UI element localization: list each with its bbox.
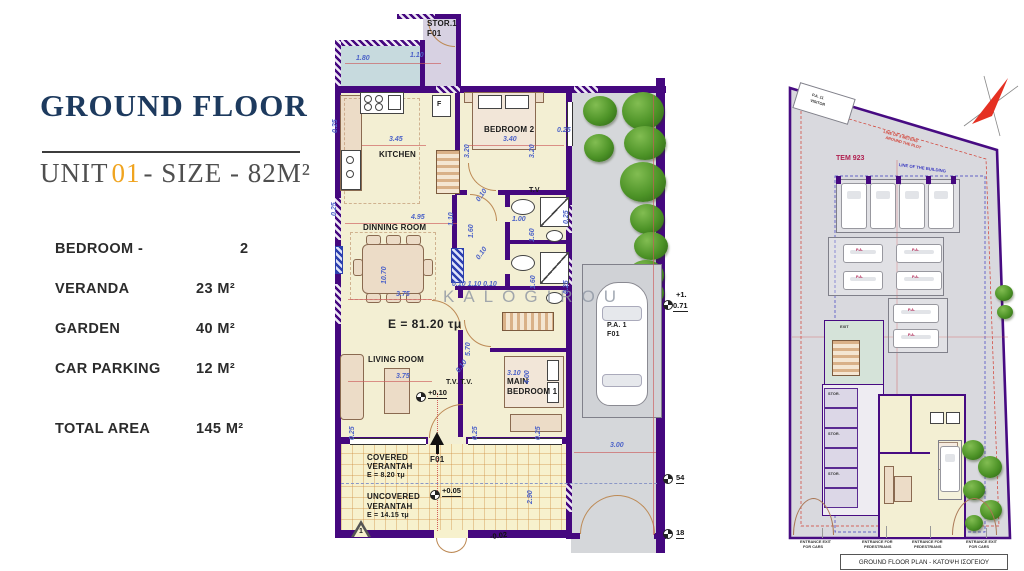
stairs: [832, 340, 860, 376]
uncovered-veranda-label: UNCOVERED: [367, 492, 420, 501]
dim: 0.25: [472, 426, 479, 440]
entrance-code-label: F01: [430, 455, 444, 464]
dim-line: [362, 145, 426, 146]
car: [896, 271, 942, 290]
stove-burner: [375, 103, 383, 111]
tree: [620, 162, 666, 202]
dim: 0.25: [563, 210, 570, 224]
storage-cell-label: STOR.: [828, 472, 840, 476]
covered-veranda-label2: VERANTAH: [367, 462, 412, 471]
dim: 1.80: [356, 55, 370, 62]
dim: 3.40: [503, 136, 517, 143]
dim: 0.25: [563, 280, 570, 294]
stall-label: P.A.: [856, 275, 863, 279]
pillow: [505, 95, 529, 109]
car: [940, 446, 960, 492]
dim: 0.10 1.10 0.10: [452, 281, 497, 288]
dim-line: [348, 381, 432, 382]
covered-veranda-area: E = 8.20 τμ: [367, 472, 405, 479]
leader-line: [986, 528, 987, 538]
level-value: 0.71: [673, 301, 688, 312]
entrance-arrow-stem: [436, 445, 439, 454]
tree: [962, 440, 984, 460]
car: [843, 244, 883, 263]
stairs: [502, 312, 554, 331]
tree: [622, 92, 664, 130]
dim-line: [574, 452, 656, 453]
fridge-label: F: [437, 101, 441, 108]
storage-cell: [824, 488, 858, 508]
entrance-label-cars: ENTRANCE EXIT: [966, 540, 997, 544]
tree: [995, 285, 1013, 301]
storage-code: F01: [427, 29, 441, 38]
entrance-label-cars: ENTRANCE EXIT: [800, 540, 831, 544]
nightstand: [535, 92, 544, 103]
pillow: [547, 360, 559, 381]
dim: 10.70: [381, 266, 388, 284]
pillow: [478, 95, 502, 109]
stove-burner: [364, 95, 372, 103]
unit-subtitle: UNIT01- SIZE - 82M²: [40, 158, 311, 189]
entrance-arrow-icon: [430, 432, 444, 445]
dim-line: [653, 95, 654, 535]
stall-label: P.A.: [908, 308, 915, 312]
room-label-main-bedroom2: BEDROOM 1: [507, 387, 557, 396]
dim: 1.10: [448, 212, 455, 226]
storage-cell: [824, 468, 858, 488]
wall: [436, 86, 460, 93]
column: [451, 248, 464, 283]
level-value: 18: [676, 528, 684, 539]
dim: 3.20: [464, 144, 471, 158]
wall: [335, 40, 425, 46]
wall: [505, 240, 572, 244]
wall: [490, 348, 572, 352]
dim: 3.75: [396, 373, 410, 380]
pier: [896, 176, 901, 184]
veranda-divider-dashed: [341, 483, 657, 484]
car: [843, 271, 883, 290]
sink: [511, 199, 535, 215]
bath-mini: [946, 412, 960, 424]
dim: 2.90: [527, 490, 534, 504]
spec-row-garden: GARDEN40 M²: [55, 321, 235, 337]
tree: [997, 305, 1013, 319]
dim: 0.25: [332, 119, 339, 133]
tree: [978, 456, 1002, 478]
window: [468, 438, 562, 445]
spec-label: BEDROOM -: [55, 241, 196, 257]
spec-row-parking: CAR PARKING12 M²: [55, 361, 235, 377]
storage-cell-label: STOR.: [828, 392, 840, 396]
column: [335, 246, 343, 274]
room-label-living: LIVING ROOM: [368, 355, 424, 364]
car: [893, 329, 939, 348]
door-opening: [505, 260, 510, 274]
level-marker-icon: [663, 300, 673, 310]
storage-floor: [341, 45, 421, 87]
level-value: +0.10: [428, 388, 447, 399]
unit-number: 01: [108, 158, 143, 188]
page: GROUND FLOOR UNIT01- SIZE - 82M² BEDROOM…: [0, 0, 1024, 571]
dim-line: [348, 299, 432, 300]
tree: [963, 480, 985, 500]
wall: [566, 484, 572, 512]
pier: [866, 176, 871, 184]
wall: [335, 284, 341, 324]
window: [567, 102, 573, 146]
dim: 0.25: [331, 202, 338, 216]
entrance-label-ped: ENTRANCE FOR: [862, 540, 893, 544]
parking-code: F01: [607, 331, 620, 338]
dim: 3.10: [507, 370, 521, 377]
covered-veranda-label: COVERED: [367, 453, 408, 462]
room-label-bedroom2: BEDROOM 2: [484, 125, 534, 134]
car-rear-window: [602, 374, 642, 387]
site-plan-title-box: GROUND FLOOR PLAN - ΚΑΤΟΨΗ ΙΣΟΓΕΙΟΥ: [840, 554, 1008, 570]
stall-label: P.A.: [908, 333, 915, 337]
leader-line: [822, 528, 823, 538]
spec-row-veranda: VERANDA23 M²: [55, 281, 235, 297]
car: [893, 304, 939, 323]
level-value: +0.05: [442, 486, 461, 497]
spec-value: 2: [240, 241, 248, 257]
uncovered-veranda-area: E = 14.15 τμ: [367, 512, 409, 519]
exit-label: EXIT: [840, 325, 849, 329]
dim: 3.75: [396, 291, 410, 298]
toilet: [546, 230, 563, 242]
dim: 3.00: [610, 442, 624, 449]
dim: 5.70: [465, 342, 472, 356]
tv-label: T.V: [529, 187, 540, 194]
plot-number: TEM 923: [836, 155, 864, 162]
dining-dashed-outline: [350, 232, 436, 300]
table-mini: [894, 476, 912, 502]
level-value: +1.: [676, 290, 687, 299]
tree: [624, 126, 666, 160]
entrance-label-cars2: FOR CARS: [969, 545, 989, 549]
wall: [880, 452, 930, 454]
door-arc: [451, 538, 467, 553]
leader-line: [930, 526, 931, 538]
dim: 3.20: [529, 144, 536, 158]
entrance-label-ped2: PEDESTRIANS: [864, 545, 891, 549]
dim: 1.60: [529, 228, 536, 242]
unit-size: - SIZE - 82M²: [143, 158, 310, 188]
storage-cell: [824, 408, 858, 428]
veranda-door-opening: [434, 530, 468, 538]
storage-cell: [824, 388, 858, 408]
leader-line: [886, 526, 887, 538]
tv-tv-label: T.V. T.V.: [446, 379, 473, 386]
entrance-label-ped2: PEDESTRIANS: [914, 545, 941, 549]
dim: 1.60: [468, 224, 475, 238]
storage-cell: [824, 448, 858, 468]
unit-prefix: UNIT: [40, 158, 108, 188]
car: [928, 183, 954, 229]
dim: 1.10: [410, 52, 424, 59]
kitchen-sink: [388, 95, 401, 110]
dim: 3.45: [389, 136, 403, 143]
spec-label: TOTAL AREA: [55, 421, 196, 437]
entrance-label-ped: ENTRANCE FOR: [912, 540, 943, 544]
spec-value: 12 M²: [196, 361, 235, 377]
dim: 1.60: [530, 275, 537, 289]
spec-value: 23 M²: [196, 281, 235, 297]
dim-line: [468, 145, 564, 146]
spec-value: 145 M²: [196, 421, 244, 437]
level-marker-icon: [430, 490, 440, 500]
level-value: -0.02: [489, 530, 507, 541]
level-marker-icon: [663, 474, 673, 484]
spec-label: GARDEN: [55, 321, 196, 337]
door-opening: [505, 207, 510, 222]
storage-label: STOR.1: [427, 19, 457, 28]
room-label-dining: DINNING ROOM: [363, 223, 426, 232]
stairs: [436, 150, 460, 194]
window: [350, 438, 426, 445]
page-title: GROUND FLOOR: [40, 88, 308, 124]
dim: 0.25: [349, 426, 356, 440]
tree: [630, 204, 664, 234]
watermark: KALOGIROU: [443, 287, 625, 307]
door-arc: [436, 538, 452, 553]
total-area-label: E = 81.20 τμ: [388, 317, 462, 331]
stall-label: P.A.: [856, 248, 863, 252]
spec-label: VERANDA: [55, 281, 196, 297]
car-windshield: [602, 306, 642, 321]
car: [841, 183, 867, 229]
stall-label: P.A.: [912, 275, 919, 279]
spec-row-bedroom: BEDROOM -2: [55, 241, 248, 257]
fridge: [432, 95, 451, 117]
room-label-kitchen: KITCHEN: [379, 150, 416, 159]
car: [870, 183, 896, 229]
tree: [583, 96, 617, 126]
north-arrow-icon: [956, 70, 1024, 144]
uncovered-veranda-label2: VERANTAH: [367, 502, 412, 511]
title-divider: [42, 151, 300, 153]
dim-line: [345, 63, 441, 64]
stall-label: P.A.: [912, 248, 919, 252]
sink: [511, 255, 535, 271]
wall: [910, 396, 912, 454]
spec-label: CAR PARKING: [55, 361, 196, 377]
kitchen-counter-mini: [884, 466, 894, 504]
stove-burner: [364, 103, 372, 111]
nightstand: [464, 92, 473, 103]
storage-cell-label: STOR.: [828, 432, 840, 436]
level-marker-icon: [416, 392, 426, 402]
storage-cell: [824, 428, 858, 448]
dim: 0.25: [535, 426, 542, 440]
wall: [574, 86, 598, 93]
dim: 0.25: [557, 127, 571, 134]
level-marker-icon: [663, 529, 673, 539]
car: [896, 244, 942, 263]
dim: 4.00: [524, 370, 531, 384]
spec-row-total: TOTAL AREA145 M²: [55, 421, 244, 437]
site-plan-title: GROUND FLOOR PLAN - ΚΑΤΟΨΗ ΙΣΟΓΕΙΟΥ: [859, 559, 989, 566]
dim: 1.00: [512, 216, 526, 223]
bath-mini: [930, 412, 944, 424]
entrance-label-cars2: FOR CARS: [803, 545, 823, 549]
pier: [951, 176, 956, 184]
sofa: [340, 354, 364, 420]
pier: [926, 176, 931, 184]
parking-label: P.A. 1: [607, 322, 627, 329]
dim: 4.95: [411, 214, 425, 221]
sink-bowl: [346, 170, 354, 178]
tree: [634, 232, 668, 260]
spec-value: 40 M²: [196, 321, 235, 337]
level-value: 54: [676, 473, 684, 484]
plan-marker-number: 1: [359, 528, 363, 535]
stove-burner: [375, 95, 383, 103]
pier: [836, 176, 841, 184]
tree: [584, 134, 614, 162]
sink-bowl: [346, 156, 354, 164]
car: [899, 183, 925, 229]
